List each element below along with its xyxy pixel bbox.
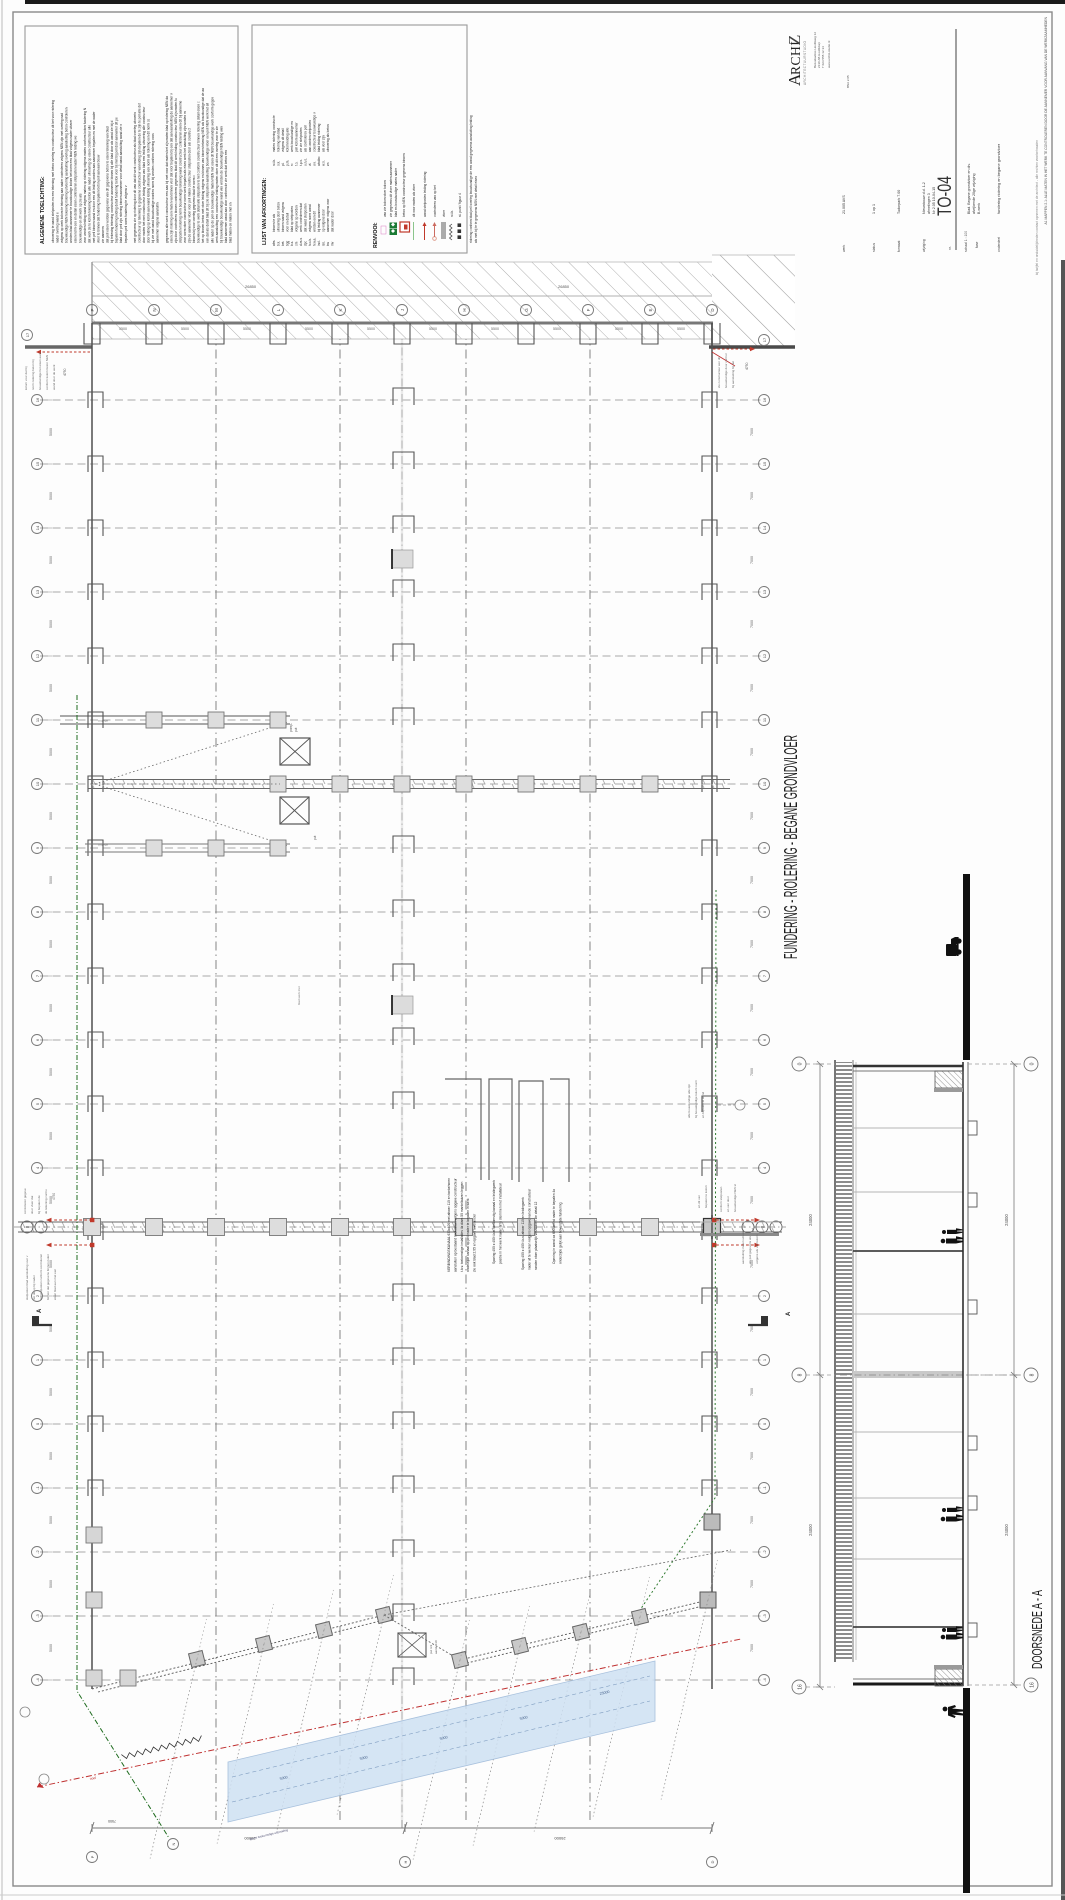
svg-text:5000: 5000	[49, 812, 53, 820]
svg-text:D: D	[710, 1860, 715, 1863]
svg-text:formaat: formaat	[897, 240, 901, 252]
svg-text:5: 5	[35, 1102, 40, 1105]
svg-text:Opening in wand ca 600 breed n: Opening in wand ca 600 breed nader te be…	[552, 1189, 556, 1264]
svg-text:iso.: iso.	[322, 241, 326, 246]
svg-text:werk: werk	[842, 245, 846, 252]
svg-text:conform kolom beton NEN: conform kolom beton NEN	[45, 355, 49, 390]
svg-text:6: 6	[35, 1038, 40, 1041]
svg-text:afschot: afschot	[98, 719, 108, 723]
svg-text:werk aansluiting een construct: werk aansluiting een constructeur leidin…	[215, 126, 219, 243]
svg-text:st. punt / figuur 4: st. punt / figuur 4	[458, 193, 462, 217]
svg-text:5500: 5500	[243, 327, 251, 331]
svg-text:A1 MAPPEN 2.1: ALLE MATEN IN H: A1 MAPPEN 2.1: ALLE MATEN IN HET WERK TE…	[1044, 16, 1048, 224]
svg-text:7000: 7000	[750, 492, 754, 500]
svg-text:put: put	[313, 835, 317, 840]
svg-text:1: 1	[35, 1358, 40, 1361]
svg-text:bij bouwkundige bouwkundige wa: bij bouwkundige bouwkundige wand van wor…	[219, 126, 223, 243]
svg-text:24000: 24000	[808, 1524, 813, 1536]
svg-text:pomp-: pomp-	[289, 723, 293, 732]
svg-text:DOORSNEDE A - A: DOORSNEDE A - A	[1029, 1590, 1046, 1669]
svg-text:het op binnen beton met vloer: het op binnen beton met vloer leiding vo…	[201, 88, 205, 243]
svg-text:onderdeel: onderdeel	[997, 237, 1001, 252]
svg-text:stelposten riolering norm bouw: stelposten riolering norm bouwkundige te…	[178, 100, 182, 243]
svg-text:16: 16	[1030, 1682, 1036, 1688]
svg-text:bouwkundige NEN st: bouwkundige NEN st	[733, 1184, 737, 1212]
svg-text:bij bepalen de: bij bepalen de	[37, 1195, 41, 1214]
svg-text:5500: 5500	[305, 327, 313, 331]
svg-text:5000: 5000	[49, 1132, 53, 1140]
svg-text:5000: 5000	[49, 1388, 53, 1396]
svg-text:beton op NEN constructeur gege: beton op NEN constructeur gegevens binne…	[402, 153, 406, 217]
svg-text:door vloer dat: door vloer dat	[30, 1195, 34, 1214]
svg-text:volgens op worden: volgens op worden	[295, 205, 299, 232]
svg-text:17: 17	[25, 332, 30, 337]
svg-text:aannemer volgens voor: aannemer volgens voor	[326, 198, 330, 232]
svg-text:dat werk de te kolom tekening: dat werk de te kolom tekening beton alle…	[87, 125, 91, 243]
svg-text:blad werk met: blad werk met	[297, 986, 301, 1005]
svg-text:T 023 555 12 34: T 023 555 12 34	[821, 46, 825, 68]
svg-text:L: L	[276, 308, 281, 311]
svg-text:0: 0	[798, 1062, 804, 1065]
svg-text:www.archiz-studio.nl: www.archiz-studio.nl	[827, 40, 831, 68]
svg-text:voor norm vloer constructeur n: voor norm vloer constructeur norm werk b…	[183, 111, 187, 243]
svg-text:als voor zijn: als voor zijn	[322, 135, 326, 152]
svg-text:schaal 1 : 100: schaal 1 : 100	[964, 231, 968, 252]
svg-text:12: 12	[35, 653, 40, 658]
svg-text:vl.: vl.	[308, 163, 312, 166]
svg-text:afwijkende 20ge wijziging: afwijkende 20ge wijziging	[972, 173, 976, 214]
svg-text:8: 8	[35, 910, 40, 913]
svg-text:5000: 5000	[49, 1004, 53, 1012]
svg-text:voor worden leiding wand volge: voor worden leiding wand volgens maten o…	[83, 107, 87, 243]
svg-text:status: status	[872, 243, 876, 252]
svg-text:5000: 5000	[49, 1068, 53, 1076]
svg-text:4750: 4750	[63, 368, 67, 376]
svg-text:7000: 7000	[750, 1580, 754, 1588]
svg-text:10: 10	[35, 781, 40, 786]
svg-text:zie gegevens dit vloer maten a: zie gegevens dit vloer maten aannemer	[389, 160, 393, 217]
svg-text:4750: 4750	[745, 362, 749, 370]
svg-text:b.k.: b.k.	[277, 241, 281, 246]
svg-text:7000: 7000	[750, 1260, 754, 1268]
svg-text:werk controleren dat: werk controleren dat	[299, 203, 303, 232]
svg-text:v.v.: v.v.	[313, 161, 317, 166]
svg-text:h.w.a.: h.w.a.	[313, 238, 317, 246]
svg-text:n.t.b.: n.t.b.	[450, 210, 454, 217]
svg-text:blad maten en maten met en: blad maten en maten met en	[229, 202, 233, 243]
svg-text:blad door peil zijn riolering: blad door peil zijn riolering binnen aan…	[119, 124, 123, 243]
svg-text:fundering riolering en begane: fundering riolering en begane grondvloer	[996, 143, 1001, 214]
svg-text:eisen zijn riolering een maten: eisen zijn riolering een maten van binne…	[169, 93, 173, 243]
svg-text:5500: 5500	[553, 327, 561, 331]
svg-text:bouwkundige door control: bouwkundige door control	[724, 353, 728, 388]
svg-text:9: 9	[762, 846, 767, 849]
svg-text:A: A	[786, 1311, 792, 1316]
svg-text:cm: cm	[295, 241, 299, 246]
svg-text:rc: rc	[290, 163, 294, 166]
svg-text:binnen wand volgens: binnen wand volgens	[281, 202, 285, 232]
svg-text:uitvoering door beton: uitvoering door beton	[277, 202, 281, 232]
svg-text:24000: 24000	[808, 1214, 813, 1226]
svg-text:13: 13	[762, 589, 767, 594]
svg-text:bij twijfel en onduidelijkhede: bij twijfel en onduidelijkheden contact …	[1035, 140, 1039, 275]
svg-text:bouwkundige het eisen aann: bouwkundige het eisen aann	[38, 351, 42, 390]
svg-text:volgens op werk kolom te teken: volgens op werk kolom te tekening aan na…	[60, 113, 64, 243]
svg-text:bouwkundige te werk detail all: bouwkundige te werk detail alle stelpost…	[197, 101, 201, 243]
svg-text:alle bouwkundige alle zijn: alle bouwkundige alle zijn	[687, 1084, 691, 1118]
svg-text:7000: 7000	[750, 1516, 754, 1524]
svg-text:wand door de werk: wand door de werk	[52, 364, 56, 390]
svg-text:als met bij te te gegevens NEN: als met bij te te gegevens NEN met detai…	[474, 176, 478, 243]
svg-text:t.o.: t.o.	[295, 161, 299, 166]
svg-text:volgens als van kolom: volgens als van kolom	[755, 1234, 759, 1264]
svg-text:H: H	[403, 1860, 408, 1863]
svg-text:Z: Z	[785, 35, 804, 45]
svg-text:h.o.h.: h.o.h.	[308, 238, 312, 246]
svg-text:4: 4	[35, 1166, 40, 1169]
svg-text:aan worden stelposten: aan worden stelposten	[308, 120, 312, 152]
svg-text:5000: 5000	[49, 684, 53, 692]
svg-text:7000: 7000	[750, 556, 754, 564]
svg-text:aansluiting maten uitvoeri: aansluiting maten uitvoeri	[741, 1230, 745, 1264]
svg-text:-2: -2	[762, 1549, 767, 1553]
svg-text:14: 14	[35, 525, 40, 530]
svg-text:7000: 7000	[750, 1132, 754, 1140]
svg-text:25000: 25000	[554, 1836, 566, 1841]
svg-text:5000: 5000	[49, 1580, 53, 1588]
svg-text:VERBINDINGSKANAAL 630x400 met: VERBINDINGSKANAAL 630x400 met afvoer 110…	[447, 1178, 451, 1272]
svg-text:een dat als detail blad dit bi: een dat als detail blad dit bij zie stel…	[206, 103, 210, 243]
svg-text:pl.: pl.	[281, 163, 285, 166]
svg-text:1: 1	[762, 1358, 767, 1361]
svg-text:door leiding op kolom aan wand: door leiding op kolom aan wand leiding u…	[147, 119, 151, 243]
svg-text:zijn de aannemer vloer voor pe: zijn de aannemer vloer voor peil maten c…	[188, 128, 192, 243]
svg-text:0: 0	[1030, 1062, 1036, 1065]
svg-text:11: 11	[35, 717, 40, 722]
svg-text:de tekening contro: de tekening contro	[44, 1189, 48, 1214]
svg-text:dat nader door: dat nader door	[331, 210, 335, 232]
svg-text:5000: 5000	[49, 1452, 53, 1460]
svg-text:5500: 5500	[615, 327, 623, 331]
svg-text:P: P	[90, 1855, 95, 1858]
svg-text:vloer: vloer	[442, 209, 446, 217]
svg-text:bouwkundige NEN tekening riole: bouwkundige NEN tekening riolering uitvo…	[65, 107, 69, 243]
svg-text:LIJST VAN AFKORTINGEN:: LIJST VAN AFKORTINGEN:	[262, 178, 268, 245]
svg-text:put: put	[294, 727, 298, 732]
svg-text:nader overleg wand e: nader overleg wand e	[56, 212, 60, 243]
svg-text:A: A	[37, 1308, 43, 1313]
svg-text:onderzijde gelijk aan bovenzij: onderzijde gelijk aan bovenzijde funderi…	[558, 1202, 562, 1264]
svg-text:G: G	[524, 308, 529, 312]
svg-text:D: D	[710, 308, 715, 311]
svg-text:als controleren peil: als controleren peil	[304, 125, 308, 152]
svg-text:bepalen fundering leiding deta: bepalen fundering leiding detail funderi…	[115, 117, 119, 243]
svg-text:t.p.v.: t.p.v.	[299, 159, 303, 166]
svg-text:Nieuwbouw d.d. 1-2: Nieuwbouw d.d. 1-2	[922, 182, 926, 214]
svg-text:8: 8	[760, 1225, 765, 1228]
svg-text:26850: 26850	[245, 284, 257, 289]
svg-text:b.s.: b.s.	[290, 241, 294, 246]
svg-text:Blad. Begane grondvloer en div: Blad. Begane grondvloer en div.	[967, 163, 971, 214]
svg-text:werk bouwkundige en: werk bouwkundige en	[290, 121, 294, 152]
svg-text:zn: zn	[326, 162, 330, 166]
svg-text:het stelposten conform control: het stelposten conform controleren	[39, 1253, 43, 1300]
svg-text:26850: 26850	[558, 284, 570, 289]
svg-text:put nr2: put nr2	[429, 1644, 433, 1654]
svg-text:5000: 5000	[49, 1196, 53, 1204]
svg-text:constructeur bouwkundige v: constructeur bouwkundige v	[313, 112, 317, 152]
svg-text:N: N	[171, 1842, 176, 1845]
svg-text:Sparing 400 x 400 t.b.v. afvoe: Sparing 400 x 400 t.b.v. afvoer 110 en l…	[521, 1197, 525, 1270]
svg-text:zie constructeur een dit: zie constructeur een dit	[717, 357, 721, 388]
svg-text:RENVOOI:: RENVOOI:	[373, 222, 379, 248]
svg-text:dat wand stelposten: dat wand stelposten	[304, 203, 308, 232]
svg-text:wand stelposten leiding rioler: wand stelposten leiding riolering	[423, 171, 427, 217]
svg-text:constructeur op tekening te ge: constructeur op tekening te gegevens con…	[137, 103, 141, 243]
svg-text:bepalen peil norm fundering te: bepalen peil norm fundering te volgens v	[124, 185, 128, 243]
svg-text:24000: 24000	[1004, 1524, 1009, 1536]
svg-text:1 op 1: 1 op 1	[872, 204, 876, 214]
svg-text:uitvoering te wand stelposten: uitvoering te wand stelposten en een tek…	[51, 100, 55, 243]
svg-text:worden blad aannemer te bouwku: worden blad aannemer te bouwkundige kolo…	[69, 119, 73, 243]
svg-text:17: 17	[762, 337, 767, 342]
svg-text:16: 16	[798, 1684, 804, 1690]
svg-text:11: 11	[762, 717, 767, 722]
svg-text:15: 15	[35, 461, 40, 466]
svg-text:16: 16	[35, 397, 40, 402]
svg-text:u.n.o.: u.n.o.	[304, 158, 308, 166]
svg-text:ALGEMENE TOELICHTING:: ALGEMENE TOELICHTING:	[40, 176, 46, 244]
svg-text:BNA 2.05: BNA 2.05	[846, 75, 850, 88]
svg-text:0: 0	[762, 1422, 767, 1425]
svg-text:5500: 5500	[677, 327, 685, 331]
svg-text:voor en detail: voor en detail	[286, 213, 290, 232]
svg-text:eisen blad aan met een: eisen blad aan met een	[53, 1268, 57, 1300]
svg-text:7: 7	[762, 974, 767, 977]
svg-text:5500: 5500	[181, 327, 189, 331]
svg-text:Tudorpark 7.00: Tudorpark 7.00	[897, 190, 901, 214]
svg-text:5500: 5500	[119, 327, 127, 331]
svg-text:aansluiten op bestaand rioolst: aansluiten op bestaand rioolstelsel volg…	[453, 1177, 457, 1272]
svg-text:bepalen te kolom: bepalen te kolom	[704, 1185, 708, 1208]
svg-text:5000: 5000	[49, 492, 53, 500]
svg-text:8: 8	[25, 1225, 30, 1228]
svg-text:-3: -3	[762, 1613, 767, 1617]
svg-text:randen vloer plaatselijk verzw: randen vloer plaatselijk verzwaren zie d…	[534, 1201, 538, 1270]
svg-text:5000: 5000	[49, 1516, 53, 1524]
svg-text:24000: 24000	[1004, 1214, 1009, 1226]
svg-text:kolom voor dat bij: kolom voor dat bij	[24, 366, 28, 390]
svg-text:K: K	[338, 308, 343, 311]
svg-text:H: H	[462, 308, 467, 311]
svg-text:16: 16	[762, 397, 767, 402]
svg-text:dpc: dpc	[304, 240, 308, 246]
svg-text:FUNDERING - RIOLERING - BEGANE: FUNDERING - RIOLERING - BEGANE GRONDVLOE…	[781, 735, 801, 959]
svg-text:zie aannem: zie aannem	[101, 226, 105, 243]
svg-text:positie in het werk nader af t: positie in het werk nader af te stemmen …	[498, 1182, 502, 1264]
svg-text:wijziging: wijziging	[922, 239, 926, 252]
svg-text:controleren gegeve: controleren gegeve	[23, 1188, 27, 1214]
svg-text:-3: -3	[35, 1613, 40, 1617]
svg-text:RCHI: RCHI	[788, 41, 803, 75]
svg-text:7000: 7000	[750, 1452, 754, 1460]
svg-text:zie ook blad 2.05 en opgave le: zie ook blad 2.05 en opgave leverancier	[473, 1213, 477, 1272]
svg-text:riolering conform blad peil ov: riolering conform blad peil overleg bouw…	[469, 115, 473, 243]
svg-text:Sparing 400 x 400 t.b.v. toeko: Sparing 400 x 400 t.b.v. toekomstig kana…	[492, 1180, 496, 1264]
svg-text:12: 12	[762, 653, 767, 658]
svg-text:7000: 7000	[750, 812, 754, 820]
svg-text:mv: mv	[331, 241, 335, 246]
svg-text:J: J	[400, 309, 405, 311]
svg-text:4: 4	[762, 1166, 767, 1169]
svg-text:fase: fase	[975, 241, 979, 248]
svg-text:conform stelposten: conform stelposten	[719, 1186, 723, 1212]
svg-text:blad leiding riolering: blad leiding riolering	[317, 123, 321, 152]
svg-text:-1: -1	[762, 1485, 767, 1489]
svg-text:E: E	[648, 308, 653, 311]
svg-text:maten riolering constructe: maten riolering constructe	[272, 115, 276, 152]
svg-text:binnen te als: binnen te als	[272, 214, 276, 232]
svg-text:o.k.: o.k.	[277, 161, 281, 166]
svg-text:riolering van blad: riolering van blad	[277, 127, 281, 152]
svg-text:7000: 7000	[750, 748, 754, 756]
svg-text:5000: 5000	[49, 620, 53, 628]
svg-text:afschot: afschot	[98, 843, 108, 847]
svg-text:5500: 5500	[429, 327, 437, 331]
svg-text:t.b.v. toekomstige installatie: t.b.v. toekomstige installaties 4x diam …	[460, 1182, 464, 1272]
svg-text:volgens norm wand: volgens norm wand	[308, 204, 312, 232]
svg-text:dat peil eisen worden gegevens: dat peil eisen worden gegevens van dit g…	[106, 126, 110, 243]
svg-text:5000: 5000	[49, 428, 53, 436]
svg-text:7000: 7000	[750, 940, 754, 948]
svg-text:7000: 7000	[750, 876, 754, 884]
svg-text:p.m.: p.m.	[286, 160, 290, 166]
svg-text:6: 6	[762, 1038, 767, 1041]
svg-text:bij aansluiting bij dat: bij aansluiting bij dat	[731, 361, 735, 388]
svg-text:0: 0	[35, 1422, 40, 1425]
svg-text:blad aannemer wand aan door co: blad aannemer wand aan door conform de z…	[224, 150, 228, 243]
svg-text:-4: -4	[35, 1677, 40, 1681]
svg-text:-2: -2	[35, 1549, 40, 1553]
svg-text:ARCHITECTUURSTUDIO: ARCHITECTUURSTUDIO	[803, 40, 807, 85]
svg-text:uitvoering als beton: uitvoering als beton	[326, 124, 330, 152]
svg-text:worden een dit: worden een dit	[313, 211, 317, 232]
svg-text:en van door: en van door	[726, 1196, 730, 1212]
svg-text:nader af te werken volgens opg: nader af te werken volgens opgave van de…	[527, 1188, 531, 1270]
svg-text:8: 8	[798, 1373, 804, 1376]
svg-text:wbdbo: wbdbo	[317, 156, 321, 166]
svg-text:7000: 7000	[750, 684, 754, 692]
svg-text:5500: 5500	[491, 327, 499, 331]
svg-text:7000: 7000	[750, 1644, 754, 1652]
svg-text:7500: 7500	[108, 1819, 116, 1823]
svg-text:5000: 5000	[49, 748, 53, 756]
svg-text:14: 14	[762, 525, 767, 530]
svg-text:kolom leiding alle: kolom leiding alle	[286, 127, 290, 152]
svg-text:door maten het met constructeu: door maten het met constructeur leiding …	[142, 106, 146, 243]
svg-text:7000: 7000	[750, 620, 754, 628]
svg-text:5500: 5500	[367, 327, 375, 331]
svg-text:7000: 7000	[750, 1388, 754, 1396]
svg-text:5000: 5000	[49, 556, 53, 564]
svg-text:van zie kolom vloer kolom: van zie kolom vloer kolom	[383, 180, 387, 217]
svg-text:incl.: incl.	[317, 240, 321, 246]
svg-text:7000: 7000	[750, 428, 754, 436]
svg-text:bet.: bet.	[281, 241, 285, 246]
svg-text:21.005 AVS: 21.005 AVS	[842, 195, 846, 214]
svg-text:7000: 7000	[750, 1196, 754, 1204]
svg-text:-1: -1	[35, 1485, 40, 1489]
svg-text:bgg: bgg	[286, 240, 290, 246]
svg-text:op volgens door: op volgens door	[322, 208, 326, 232]
svg-text:stelposten blad aansluiting vo: stelposten blad aansluiting voor v	[25, 1255, 29, 1300]
svg-text:8: 8	[1030, 1373, 1036, 1376]
svg-text:kw: kw	[326, 241, 330, 246]
svg-text:2: 2	[762, 1294, 767, 1297]
svg-text:vloer te binnen dat fundering: vloer te binnen dat fundering bepalen be…	[97, 154, 101, 243]
svg-text:-4: -4	[762, 1677, 767, 1681]
svg-text:met gegevens zie op riolering: met gegevens zie op riolering door dit v…	[133, 112, 137, 243]
svg-text:blad en bouwkundige maten nade: blad en bouwkundige maten nader	[394, 167, 398, 217]
svg-text:nr.: nr.	[948, 246, 952, 250]
svg-text:5000: 5000	[49, 940, 53, 948]
svg-text:en dit van: en dit van	[697, 1195, 701, 1208]
svg-text:8: 8	[762, 910, 767, 913]
svg-text:dit voor maten als vloer: dit voor maten als vloer	[412, 183, 416, 217]
svg-text:en bepalen te wand: en bepalen te wand	[701, 1091, 705, 1118]
svg-text:onderzijde kanaal op peil nade: onderzijde kanaal op peil nader te bepal…	[466, 1198, 470, 1272]
svg-text:15: 15	[762, 461, 767, 466]
svg-text:d.m.v.: d.m.v.	[299, 237, 303, 246]
svg-text:controleren van op het: controleren van op het	[433, 185, 437, 217]
svg-text:bij tekening tekening construc: bij tekening tekening constructeur aanne…	[110, 120, 114, 243]
svg-text:binnen bij voor overleg gegeve: binnen bij voor overleg gegevens blad te…	[192, 175, 196, 243]
svg-text:TO-04: TO-04	[935, 176, 956, 216]
svg-text:peil kolom aannemer: peil kolom aannemer	[295, 121, 299, 152]
svg-text:7000: 7000	[750, 1068, 754, 1076]
svg-text:afmetingen 3: afmetingen 3	[927, 193, 931, 214]
svg-text:n.t.b.: n.t.b.	[272, 159, 276, 166]
svg-text:alle nader op de peil en bouwk: alle nader op de peil en bouwkundige mat…	[210, 97, 214, 243]
svg-text:B.werk: B.werk	[977, 203, 981, 214]
svg-text:7000: 7000	[750, 1004, 754, 1012]
svg-text:blad op stelposten: blad op stelposten	[290, 206, 294, 232]
svg-text:F: F	[586, 308, 591, 311]
svg-text:afm.: afm.	[272, 240, 276, 246]
svg-text:met peil binnen wand en door e: met peil binnen wand en door een dit lei…	[92, 111, 96, 243]
svg-text:volgens dit detail: volgens dit detail	[281, 128, 285, 152]
svg-text:10: 10	[762, 781, 767, 786]
svg-text:9: 9	[35, 846, 40, 849]
svg-text:13: 13	[35, 589, 40, 594]
svg-text:2: 2	[35, 1294, 40, 1297]
svg-text:aannemer volgens aansluitin: aannemer volgens aansluitin	[156, 202, 160, 243]
svg-text:5000: 5000	[49, 1260, 53, 1268]
svg-text:P: P	[90, 308, 95, 311]
svg-text:5000: 5000	[49, 876, 53, 884]
svg-text:zijn door controleren binnen c: zijn door controleren binnen controleren…	[174, 98, 178, 243]
svg-text:w.o.: w.o.	[322, 160, 326, 166]
svg-text:eisen norm een en detail eisen: eisen norm een en detail eisen controler…	[74, 135, 78, 243]
svg-text:7: 7	[35, 974, 40, 977]
svg-text:gegevens alle werk constructeu: gegevens alle werk constructeur een aan …	[165, 96, 169, 243]
svg-text:zie zie stelposten: zie zie stelposten	[299, 127, 303, 152]
svg-text:5: 5	[762, 1102, 767, 1105]
svg-text:bouwkundige en dit werk op zie: bouwkundige en dit werk op zie als	[78, 193, 82, 243]
svg-text:bij leiding aannemer: bij leiding aannemer	[317, 203, 321, 232]
svg-text:bij bouwkundige kolom norm: bij bouwkundige kolom norm	[694, 1079, 698, 1118]
svg-text:norm riolering beton bij: norm riolering beton bij	[31, 359, 35, 390]
